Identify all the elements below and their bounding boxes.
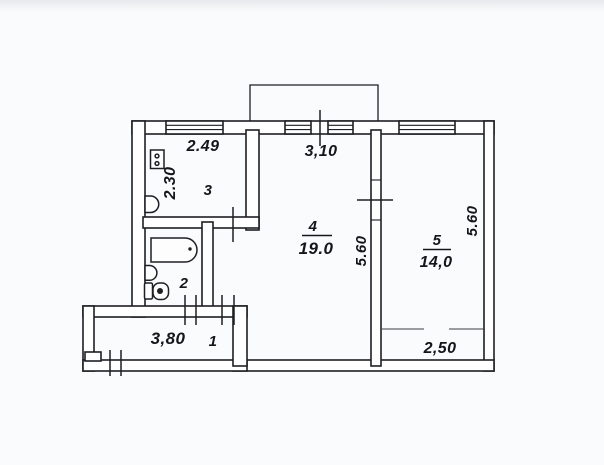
kitchen-width-label: 2.49 xyxy=(186,138,220,155)
hall-width-label: 3,80 xyxy=(151,329,186,348)
bedroom-area-label: 14,0 xyxy=(420,254,453,271)
kitchen-window-icon xyxy=(166,121,223,134)
washbasin-icon xyxy=(145,266,157,281)
living-room-number: 4 xyxy=(308,218,318,235)
stove-icon xyxy=(151,150,165,169)
hall-room-number: 1 xyxy=(209,333,218,350)
wall-bathroom-right xyxy=(202,222,213,312)
wall-right-exterior xyxy=(484,121,494,371)
kitchen-room-number: 3 xyxy=(204,182,213,199)
living-depth-label: 5.60 xyxy=(353,235,370,266)
wall-hall-bottom xyxy=(83,360,247,371)
wall-kitchen-living xyxy=(246,130,259,230)
bathtub-icon xyxy=(151,238,197,262)
bathroom-room-number: 2 xyxy=(179,275,189,292)
balcony-outline xyxy=(250,85,378,121)
bedroom-depth-label: 5.60 xyxy=(464,205,481,236)
bedroom-room-number: 5 xyxy=(433,232,442,249)
hall-corner-block xyxy=(85,352,101,361)
kitchen-sink-icon xyxy=(145,196,159,213)
floor-plan: 2.49 2.30 3 3,10 4 19.0 5.60 2 5 14,0 5.… xyxy=(0,0,604,465)
floor-plan-drawing: 2.49 2.30 3 3,10 4 19.0 5.60 2 5 14,0 5.… xyxy=(0,0,604,465)
bedroom-window-icon xyxy=(399,121,455,134)
bedroom-width-label: 2,50 xyxy=(423,340,457,357)
wall-kitchen-bottom xyxy=(143,217,259,228)
living-area-label: 19.0 xyxy=(299,239,334,258)
toilet-icon xyxy=(145,283,169,300)
living-window-right-icon xyxy=(328,121,353,134)
living-window-left-icon xyxy=(285,121,311,134)
wall-bottom-exterior xyxy=(233,360,494,371)
wall-living-bedroom xyxy=(371,130,381,366)
living-window-width-label: 3,10 xyxy=(305,143,338,160)
kitchen-depth-label: 2.30 xyxy=(162,167,179,201)
wall-hall-right xyxy=(233,306,247,366)
